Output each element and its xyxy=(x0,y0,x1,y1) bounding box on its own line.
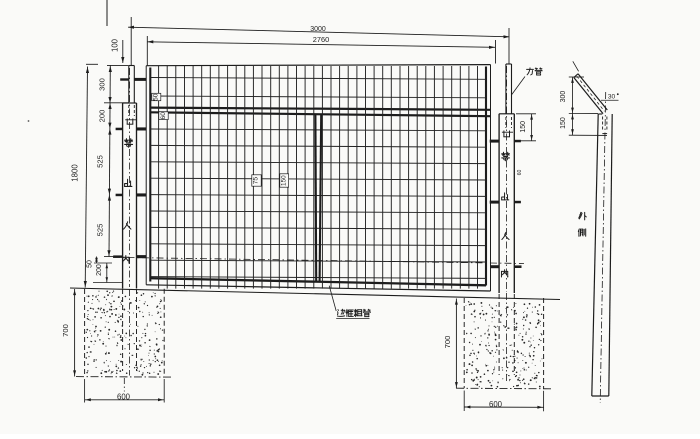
svg-text:60: 60 xyxy=(160,112,167,120)
svg-text:600: 600 xyxy=(117,392,131,401)
svg-text:600: 600 xyxy=(489,400,503,409)
svg-text:150: 150 xyxy=(520,121,527,133)
svg-text:200: 200 xyxy=(96,264,103,276)
svg-text:100: 100 xyxy=(110,38,119,52)
svg-text:30: 30 xyxy=(608,94,616,101)
svg-text:50: 50 xyxy=(153,93,160,101)
svg-text:300: 300 xyxy=(98,78,107,91)
svg-text:700: 700 xyxy=(443,336,452,349)
svg-text:60: 60 xyxy=(517,170,523,176)
svg-text:50: 50 xyxy=(87,260,94,268)
svg-text:150: 150 xyxy=(280,175,287,186)
svg-text:150: 150 xyxy=(560,117,567,129)
svg-text:75: 75 xyxy=(253,177,260,185)
svg-text:525: 525 xyxy=(96,224,105,237)
svg-text:300: 300 xyxy=(560,91,567,103)
svg-text:3000: 3000 xyxy=(310,26,326,33)
svg-text:525: 525 xyxy=(96,155,105,168)
svg-text:2760: 2760 xyxy=(313,35,329,44)
svg-text:200: 200 xyxy=(98,110,107,123)
svg-text:1800: 1800 xyxy=(71,164,80,182)
svg-text:700: 700 xyxy=(61,324,70,337)
